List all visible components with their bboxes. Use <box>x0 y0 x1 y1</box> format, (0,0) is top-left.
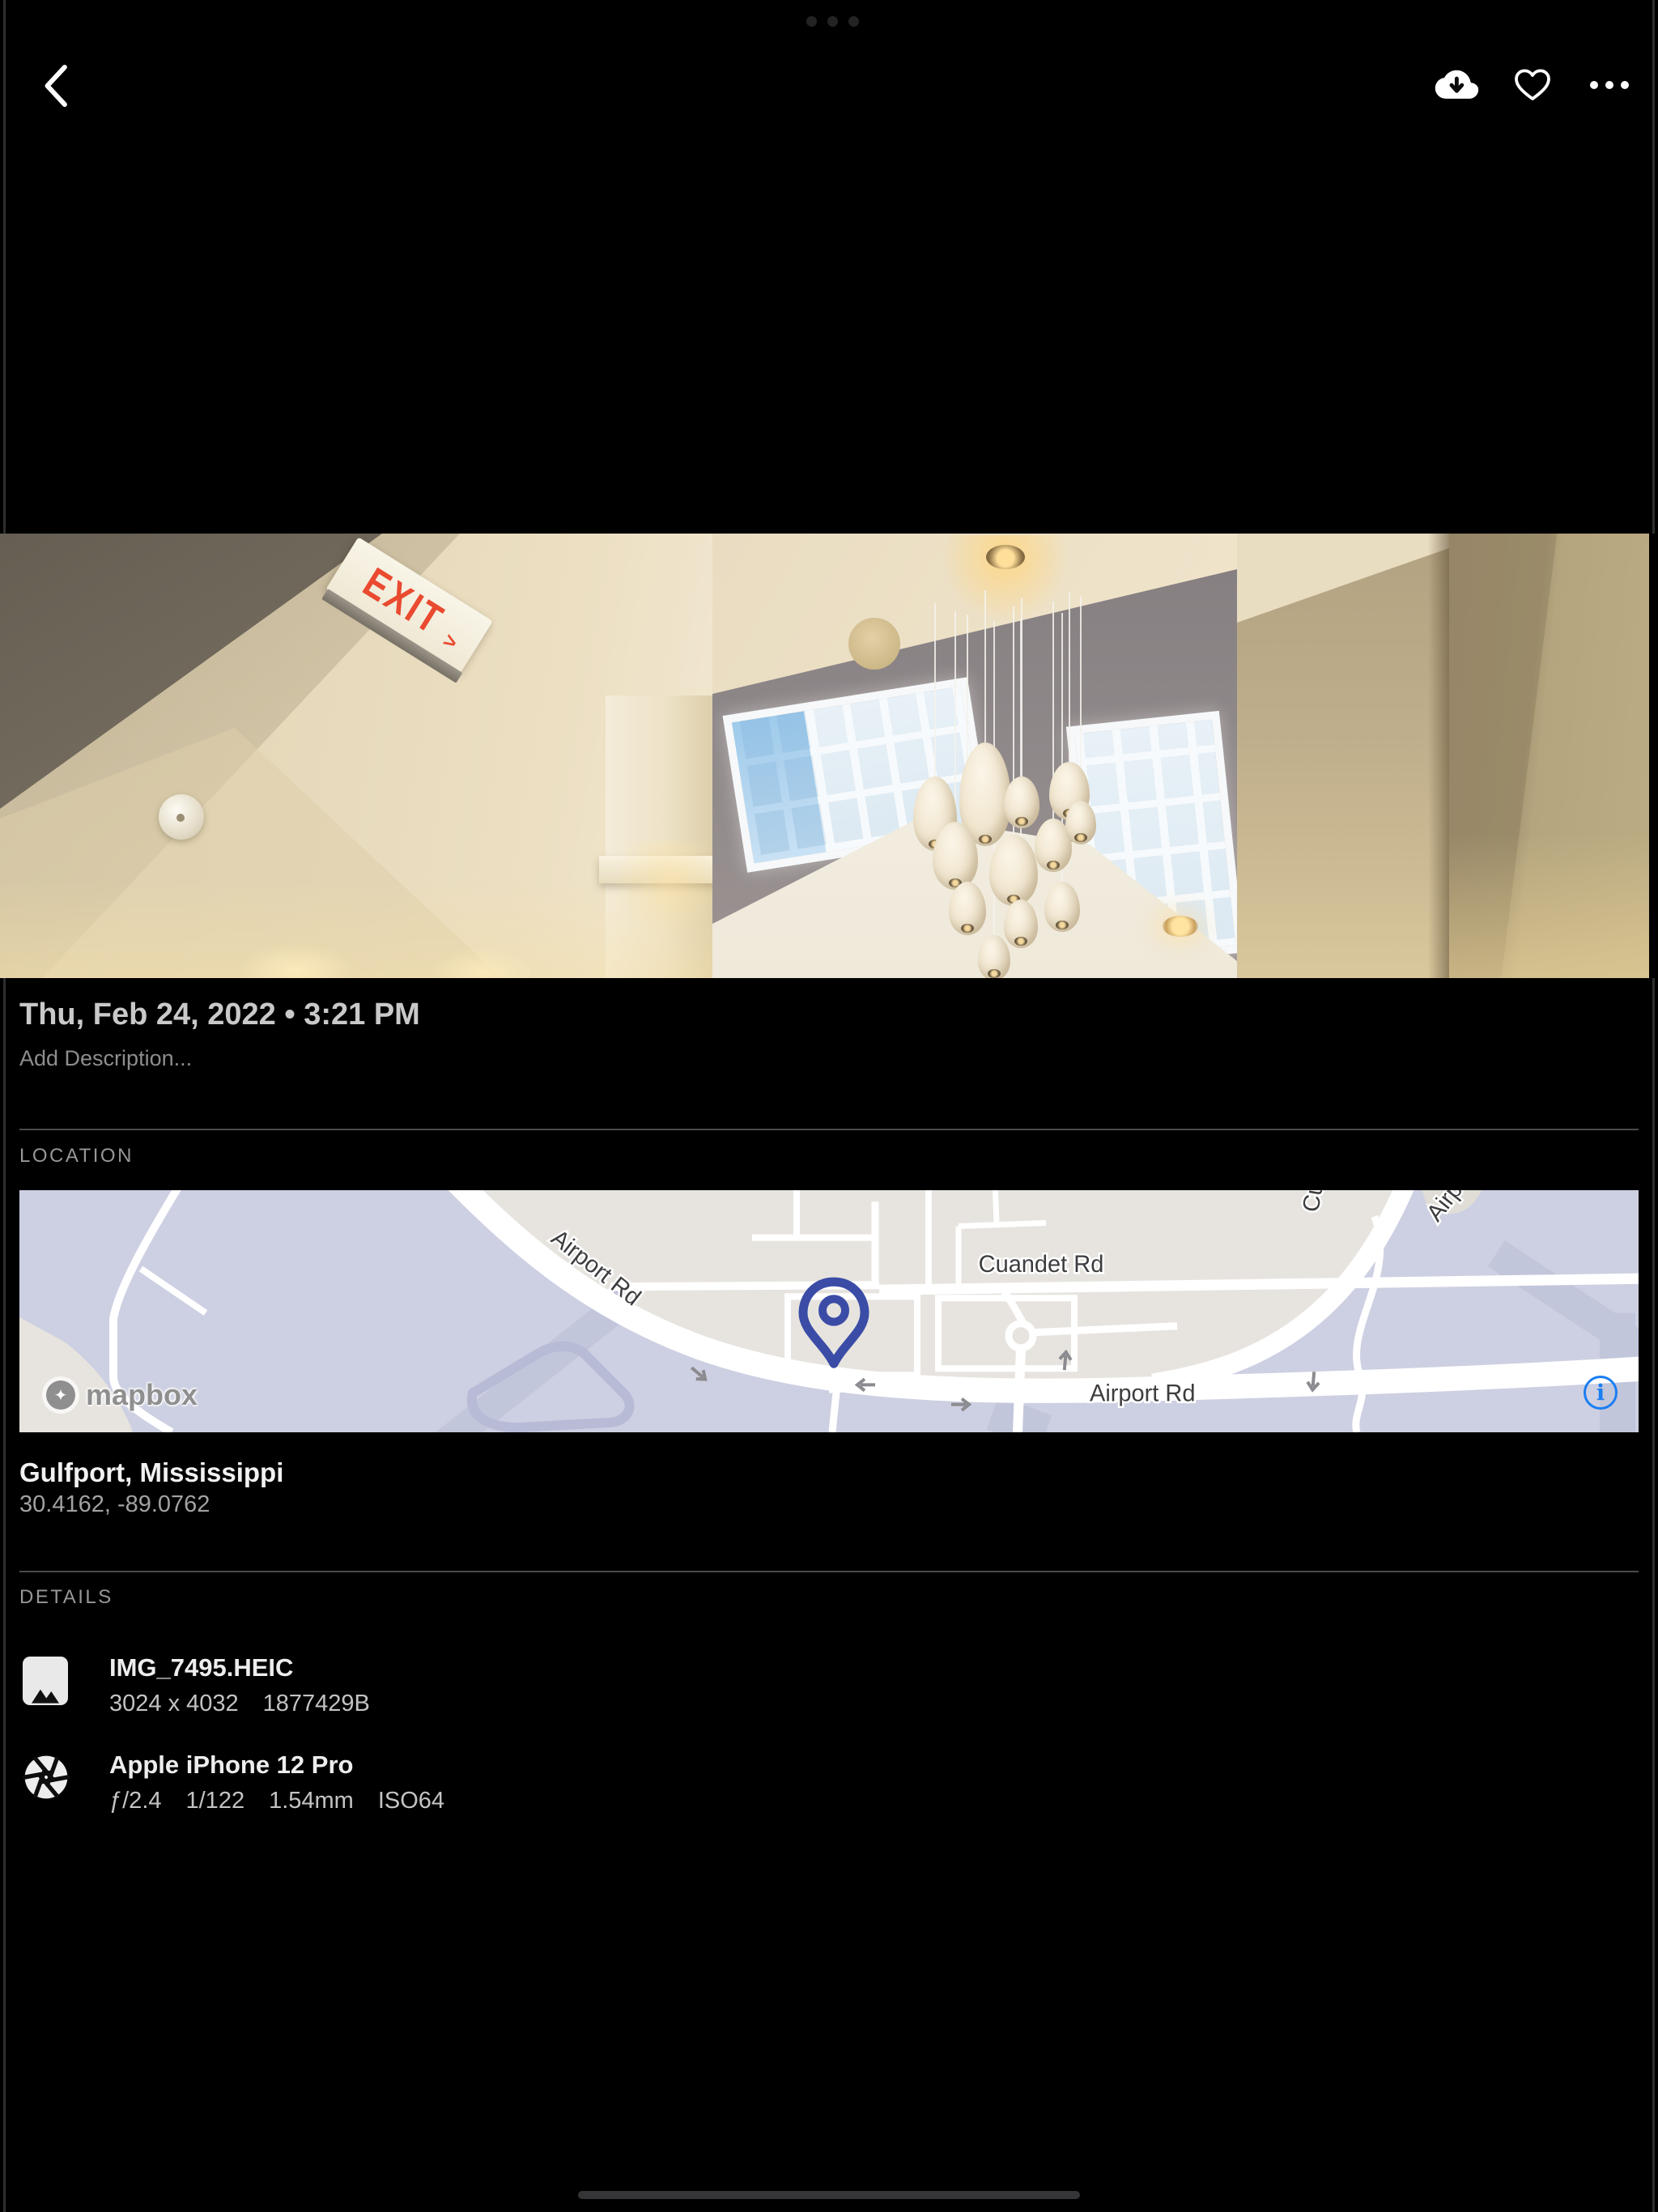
details-section-title: DETAILS <box>19 1586 113 1609</box>
location-map[interactable]: Airport Rd Cuandet Rd Airport Rd Cuandet… <box>19 1190 1639 1432</box>
exif-shutter: 1/122 <box>186 1788 245 1814</box>
map-canvas: Airport Rd Cuandet Rd Airport Rd Cuandet… <box>19 1190 1639 1432</box>
more-options-button[interactable] <box>1587 78 1632 92</box>
pendant-lamp <box>1065 801 1096 844</box>
mapbox-attribution[interactable]: ✦ mapbox <box>42 1376 198 1414</box>
download-button[interactable] <box>1431 66 1482 104</box>
pendant-lamp <box>1004 900 1038 948</box>
file-dimensions: 3024 x 4032 <box>109 1691 239 1716</box>
smoke-detector <box>159 794 204 840</box>
cloud-download-icon <box>1432 67 1481 104</box>
home-indicator[interactable] <box>578 2191 1080 2199</box>
photo-date-label: Thu, Feb 24, 2022 • 3:21 PM <box>19 998 420 1032</box>
camera-aperture-icon <box>21 1752 71 1802</box>
add-description-field[interactable]: Add Description... <box>19 1046 192 1071</box>
camera-name: Apple iPhone 12 Pro <box>109 1750 353 1780</box>
exit-sign-text: EXIT <box>355 559 453 645</box>
section-divider <box>19 1129 1639 1130</box>
photo-right-wall <box>1449 534 1649 978</box>
ceiling-medallion <box>848 618 900 670</box>
exif-aperture: ƒ/2.4 <box>109 1788 162 1814</box>
pendant-lamp <box>1004 776 1039 828</box>
photo-atrium <box>712 534 1237 978</box>
exit-sign-arrow: > <box>439 627 462 655</box>
photo-column-wall <box>1237 534 1449 978</box>
section-divider <box>19 1571 1639 1572</box>
file-name: IMG_7495.HEIC <box>109 1653 293 1682</box>
heart-icon <box>1513 67 1552 103</box>
multitasking-indicator-icon[interactable] <box>806 16 859 27</box>
location-place-name: Gulfport, Mississippi <box>19 1457 283 1488</box>
favorite-button[interactable] <box>1512 66 1553 104</box>
window-edge-right <box>1652 0 1655 2212</box>
map-road-label: Cuandet Rd <box>979 1252 1104 1278</box>
chevron-left-icon <box>40 63 73 108</box>
location-section-title: LOCATION <box>19 1145 134 1168</box>
location-coordinates: 30.4162, -89.0762 <box>19 1491 210 1518</box>
exif-focal-length: 1.54mm <box>269 1788 354 1814</box>
photo-warm-glow <box>0 881 729 978</box>
map-road-label: Airport Rd <box>1090 1380 1195 1406</box>
mapbox-logo-icon: ✦ <box>42 1376 79 1414</box>
info-glyph: i <box>1596 1380 1605 1406</box>
back-button[interactable] <box>32 62 81 110</box>
map-info-button[interactable]: i <box>1584 1376 1618 1410</box>
file-size: 1877429B <box>263 1691 370 1716</box>
pendant-lamp <box>1044 882 1080 932</box>
exif-iso: ISO64 <box>378 1788 444 1814</box>
recessed-light <box>1163 916 1198 937</box>
photo-preview[interactable]: EXIT > <box>0 534 1658 978</box>
window-edge-left <box>3 0 6 2212</box>
file-thumbnail-icon <box>23 1657 68 1705</box>
camera-exif: ƒ/2.41/1221.54mmISO64 <box>109 1788 469 1814</box>
ellipsis-icon <box>1588 79 1631 91</box>
photo-viewer-screen: EXIT > <box>0 0 1658 2212</box>
file-meta: 3024 x 40321877429B <box>109 1691 394 1717</box>
